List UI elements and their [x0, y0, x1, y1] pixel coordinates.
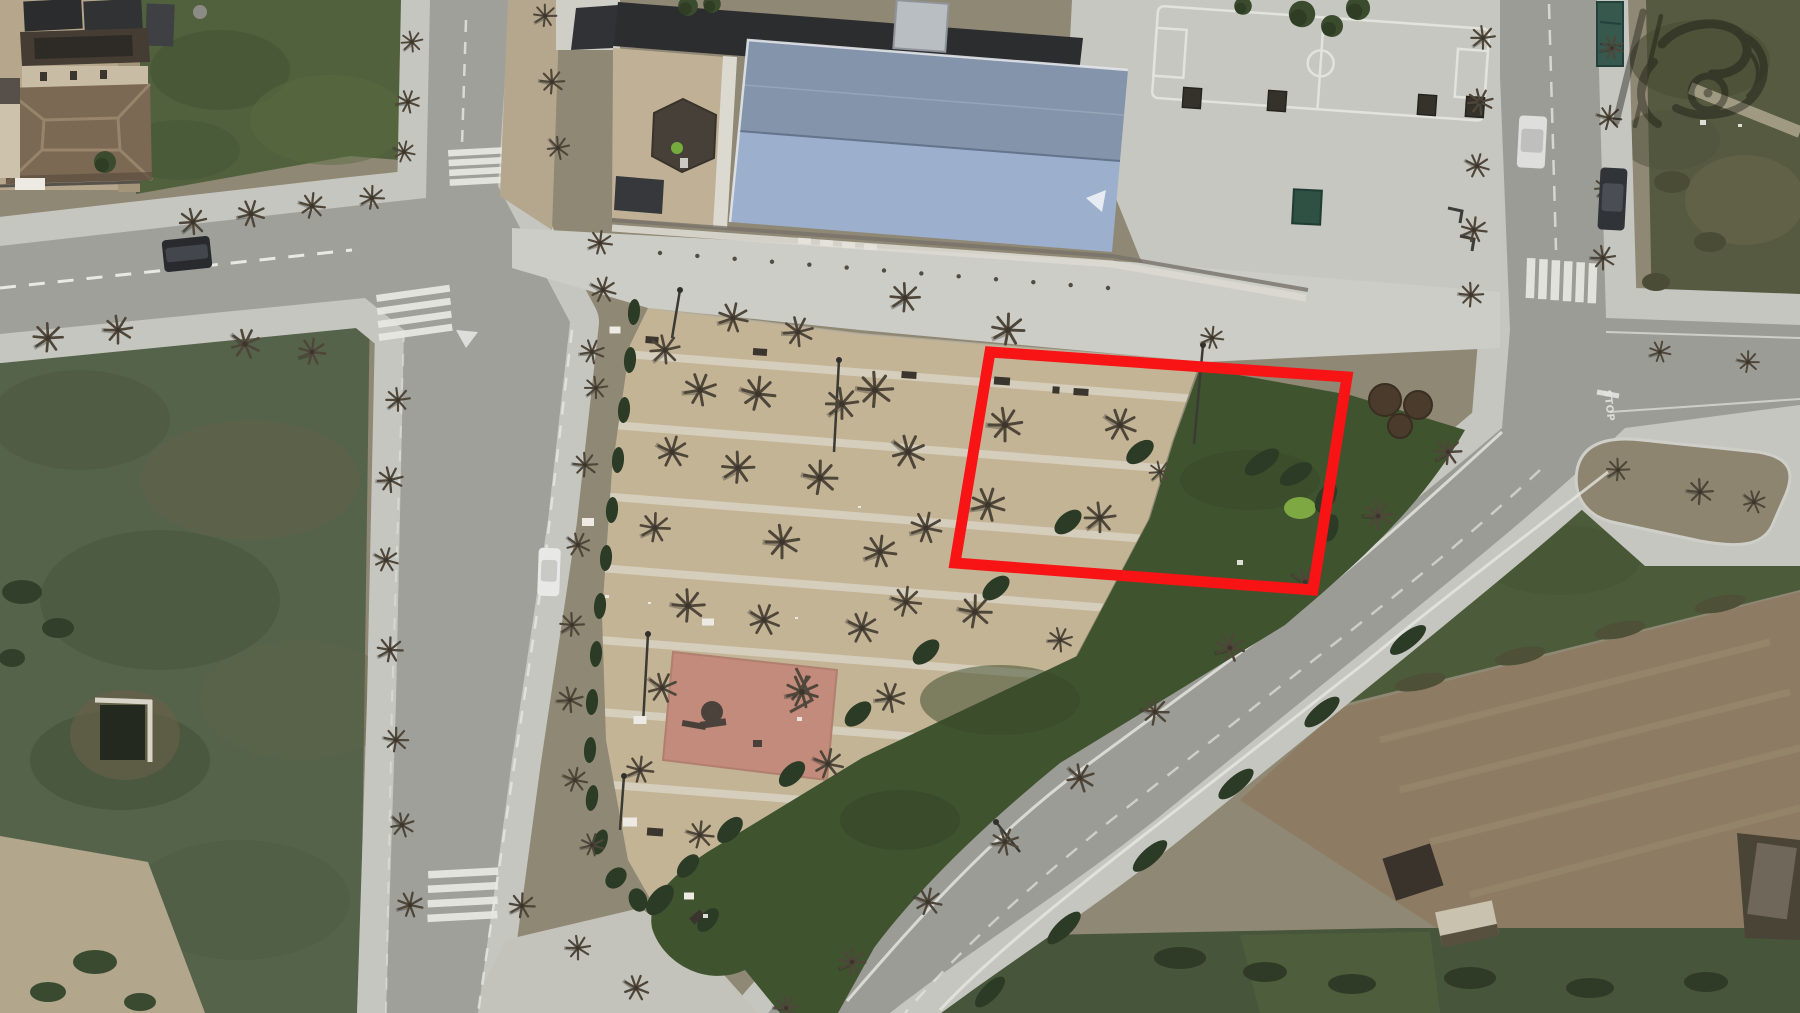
small-shed [145, 4, 174, 47]
hip-roof [4, 84, 152, 184]
scrub-field-left [0, 300, 400, 1013]
houses-top-left [0, 0, 152, 192]
kiosk [1292, 189, 1322, 224]
dirt-strip-west [500, 0, 560, 230]
green-figure [671, 142, 683, 154]
house-bottom-right [1737, 833, 1800, 940]
blue-roof [730, 40, 1128, 252]
bus-shelter [1597, 2, 1623, 66]
ruin-structure [70, 690, 180, 780]
dark-roof-strip-left [571, 5, 618, 50]
building-courtyard [612, 48, 737, 228]
manhole [193, 5, 207, 19]
playground [663, 652, 837, 780]
satellite-map-view[interactable]: STOP [0, 0, 1800, 1013]
dark-panel [614, 176, 664, 214]
bright-bush [1284, 497, 1316, 519]
rooftop-unit [893, 0, 948, 52]
